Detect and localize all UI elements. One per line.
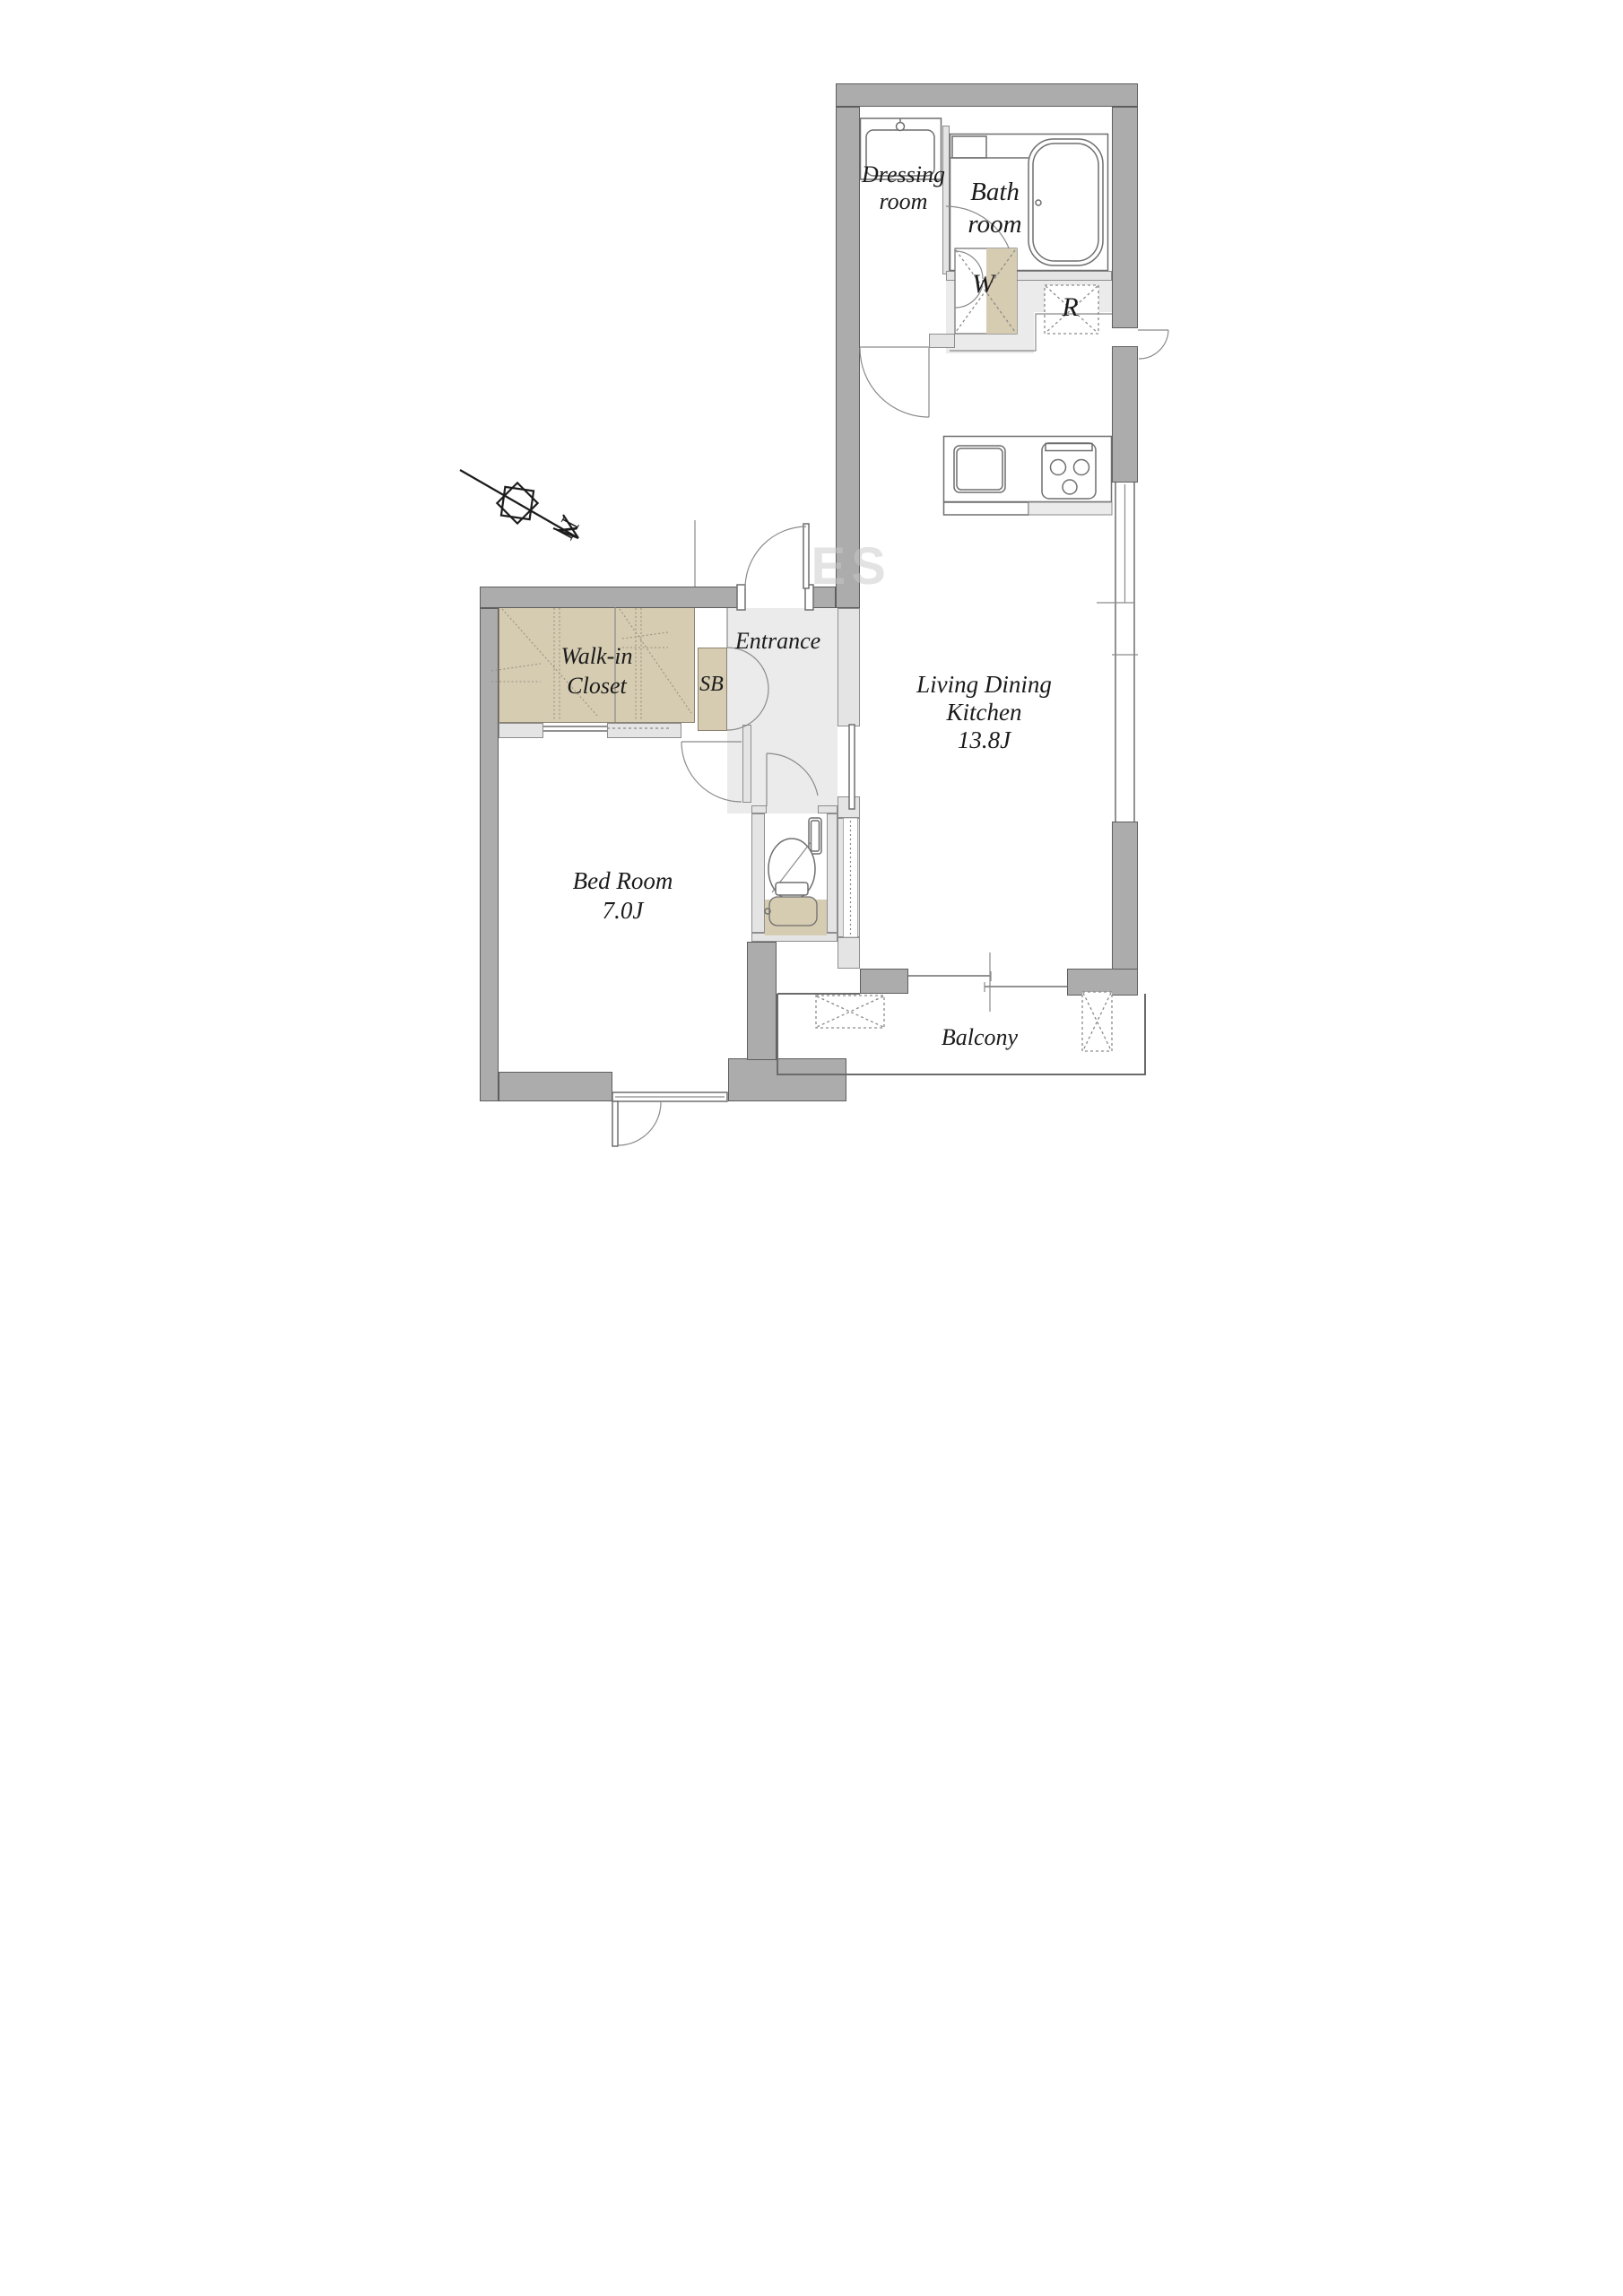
bathroom-label: Bath room — [942, 176, 1049, 240]
service-door-arc — [1139, 330, 1168, 359]
wic-label-line1: Walk-in — [534, 641, 660, 671]
bedroom-label-line1: Bed Room — [560, 866, 686, 896]
fridge-label: R — [1044, 292, 1098, 323]
wic-rod-tick1-left — [491, 664, 541, 671]
front-door-leaf — [803, 524, 809, 588]
wic-rod-tick1-right — [622, 632, 668, 639]
bedroom-south-door-arc — [618, 1102, 661, 1145]
toilet-door-arc — [767, 753, 818, 796]
toilet-seat — [776, 883, 808, 895]
front-door-arc — [745, 526, 806, 588]
bedroom-area-label: 7.0J — [560, 896, 686, 926]
ldk-label-line1: Living Dining — [913, 671, 1056, 699]
bathroom-label-line2: room — [942, 208, 1049, 240]
dressing-label-line1: Dressing — [850, 161, 958, 188]
walk-in-closet-label: Walk-in Closet — [534, 641, 660, 700]
hall-sliding-panel — [849, 725, 855, 809]
dressing-room-label: Dressing room — [850, 161, 958, 215]
washer-label: W — [957, 269, 1011, 300]
balcony-label: Balcony — [917, 1024, 1043, 1051]
bedroom-door-arc — [681, 742, 742, 802]
ldk-label: Living Dining Kitchen 13.8J — [913, 671, 1056, 754]
balcony-unit-box-left — [816, 996, 884, 1028]
plan-details — [406, 0, 1218, 1148]
kitchen-sink — [954, 446, 1005, 492]
front-door-jamb-left — [737, 585, 745, 610]
dressing-door-arc — [860, 348, 929, 417]
shoe-box-label: SB — [690, 673, 734, 697]
washbasin-faucet — [896, 123, 904, 131]
bedroom-south-door-leaf — [612, 1101, 618, 1146]
bathroom-label-line1: Bath — [942, 176, 1049, 208]
counter-front-left — [943, 502, 1028, 515]
entrance-label: Entrance — [722, 628, 835, 655]
ldk-area-label: 13.8J — [913, 726, 1056, 754]
floor-plan: ES — [406, 0, 1218, 1148]
toilet-tank — [769, 897, 817, 926]
counter-front-right — [1028, 502, 1112, 515]
bedroom-label: Bed Room 7.0J — [560, 866, 686, 926]
ldk-label-line2: Kitchen — [913, 699, 1056, 726]
bath-counter — [952, 136, 986, 158]
dressing-label-line2: room — [850, 188, 958, 215]
wic-label-line2: Closet — [534, 671, 660, 700]
